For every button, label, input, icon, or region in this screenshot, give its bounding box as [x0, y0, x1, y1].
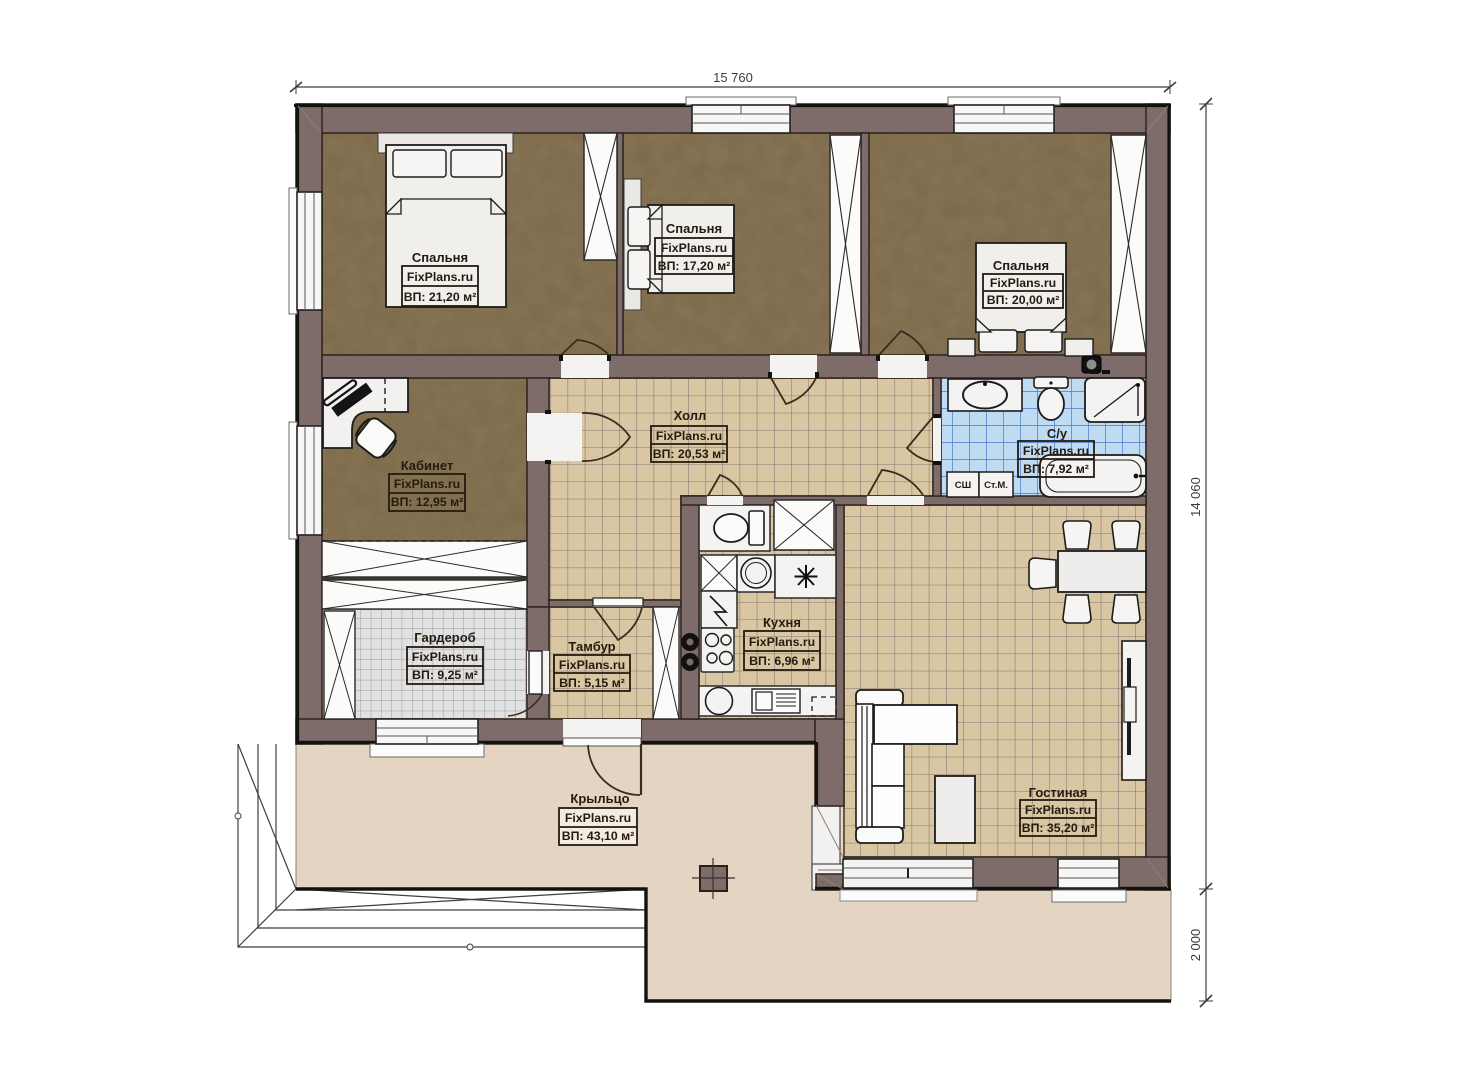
svg-text:ВП: 12,95 м²: ВП: 12,95 м²	[391, 495, 464, 509]
svg-text:Спальня: Спальня	[412, 250, 468, 265]
svg-text:ВП: 17,20 м²: ВП: 17,20 м²	[658, 259, 731, 273]
svg-text:С/у: С/у	[1047, 426, 1068, 441]
svg-text:14 060: 14 060	[1188, 477, 1203, 517]
svg-text:ВП: 9,25 м²: ВП: 9,25 м²	[412, 668, 478, 682]
svg-text:FixPlans.ru: FixPlans.ru	[407, 270, 473, 284]
svg-text:FixPlans.ru: FixPlans.ru	[749, 635, 815, 649]
svg-text:Спальня: Спальня	[666, 221, 722, 236]
svg-text:FixPlans.ru: FixPlans.ru	[990, 276, 1056, 290]
svg-text:СШ: СШ	[955, 480, 971, 491]
svg-text:ВП: 35,20 м²: ВП: 35,20 м²	[1022, 821, 1095, 835]
svg-text:ВП: 6,96 м²: ВП: 6,96 м²	[749, 654, 815, 668]
svg-text:ВП: 7,92 м²: ВП: 7,92 м²	[1023, 462, 1089, 476]
svg-text:FixPlans.ru: FixPlans.ru	[1025, 803, 1091, 817]
svg-text:Гардероб: Гардероб	[414, 630, 475, 645]
svg-text:Гостиная: Гостиная	[1029, 785, 1088, 800]
svg-text:ВП: 20,53 м²: ВП: 20,53 м²	[653, 447, 726, 461]
svg-text:Ст.М.: Ст.М.	[984, 480, 1008, 491]
svg-text:Холл: Холл	[674, 408, 707, 423]
svg-text:FixPlans.ru: FixPlans.ru	[1023, 444, 1089, 458]
svg-text:15 760: 15 760	[713, 70, 753, 85]
svg-text:Кухня: Кухня	[763, 615, 801, 630]
svg-text:Кабинет: Кабинет	[401, 458, 454, 473]
svg-text:ВП: 21,20 м²: ВП: 21,20 м²	[404, 290, 477, 304]
svg-text:Спальня: Спальня	[993, 258, 1049, 273]
svg-text:FixPlans.ru: FixPlans.ru	[661, 241, 727, 255]
svg-text:2 000: 2 000	[1188, 929, 1203, 962]
svg-text:FixPlans.ru: FixPlans.ru	[394, 477, 460, 491]
svg-text:Тамбур: Тамбур	[568, 639, 615, 654]
svg-text:FixPlans.ru: FixPlans.ru	[559, 658, 625, 672]
svg-text:FixPlans.ru: FixPlans.ru	[565, 811, 631, 825]
svg-text:FixPlans.ru: FixPlans.ru	[656, 429, 722, 443]
svg-text:Крыльцо: Крыльцо	[570, 791, 629, 806]
svg-text:ВП: 5,15 м²: ВП: 5,15 м²	[559, 676, 625, 690]
svg-text:FixPlans.ru: FixPlans.ru	[412, 650, 478, 664]
svg-text:ВП: 43,10 м²: ВП: 43,10 м²	[562, 829, 635, 843]
svg-text:ВП: 20,00 м²: ВП: 20,00 м²	[987, 293, 1060, 307]
